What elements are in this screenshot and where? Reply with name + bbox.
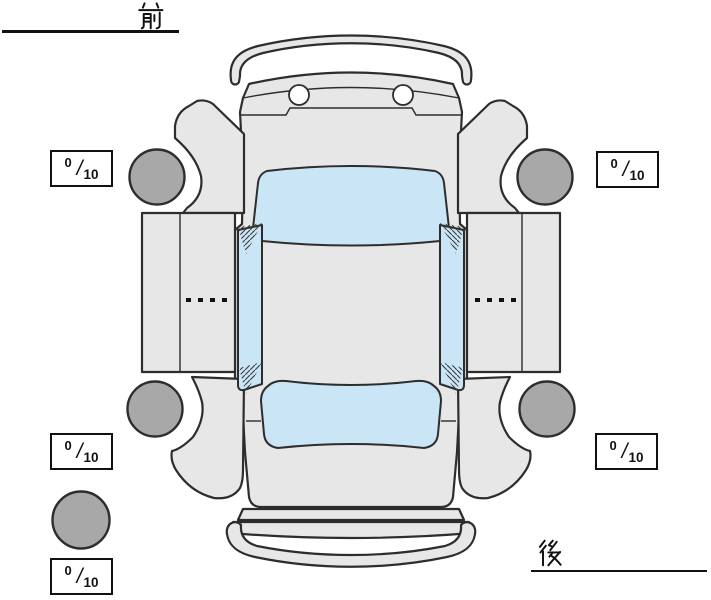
door-panel-left (142, 213, 235, 372)
spare-tire (53, 492, 110, 549)
front-kanji-glyph (137, 2, 165, 30)
headlamp-washer-right (393, 85, 413, 105)
score-separator: / (77, 158, 83, 179)
front-label: 前 (137, 2, 165, 30)
score-max: 10 (84, 168, 99, 182)
fender-front-left (175, 100, 244, 213)
score-max: 10 (84, 576, 99, 590)
rear-window-glass (261, 381, 441, 448)
tire-score-front-left: 0 / 10 (50, 150, 113, 187)
rear-label: 後 (536, 539, 564, 567)
rear-underline (531, 570, 707, 572)
tire-score-rear-right: 0 / 10 (595, 433, 658, 470)
score-max: 10 (629, 451, 644, 465)
tire-score-rear-left: 0 / 10 (50, 433, 113, 470)
score-max: 10 (630, 169, 645, 183)
rear-kanji-glyph (536, 539, 564, 567)
trunk-strip-lower (230, 522, 472, 538)
score-value: 0 (64, 564, 71, 577)
score-separator: / (623, 159, 629, 180)
car-top-view (0, 0, 711, 600)
score-separator: / (77, 566, 83, 587)
score-separator: / (77, 441, 83, 462)
score-separator: / (622, 441, 628, 462)
windshield-glass (253, 166, 449, 246)
score-value: 0 (64, 439, 71, 452)
score-value: 0 (610, 157, 617, 170)
tire-front-left (130, 150, 185, 205)
score-max: 10 (84, 451, 99, 465)
headlamp-washer-left (289, 85, 309, 105)
fender-rear-left (172, 377, 245, 498)
score-value: 0 (64, 156, 71, 169)
tire-score-front-right: 0 / 10 (596, 151, 659, 188)
tire-score-spare: 0 / 10 (50, 558, 113, 595)
score-value: 0 (609, 439, 616, 452)
front-underline (2, 30, 179, 33)
right-side-mirror (440, 100, 575, 498)
vehicle-condition-diagram: 前 後 0 / 10 0 / 10 0 / 10 0 / 10 0 / 10 (0, 0, 711, 600)
left-side-group (128, 100, 263, 498)
tire-rear-left (128, 382, 183, 437)
trunk-strip-upper (238, 509, 464, 520)
